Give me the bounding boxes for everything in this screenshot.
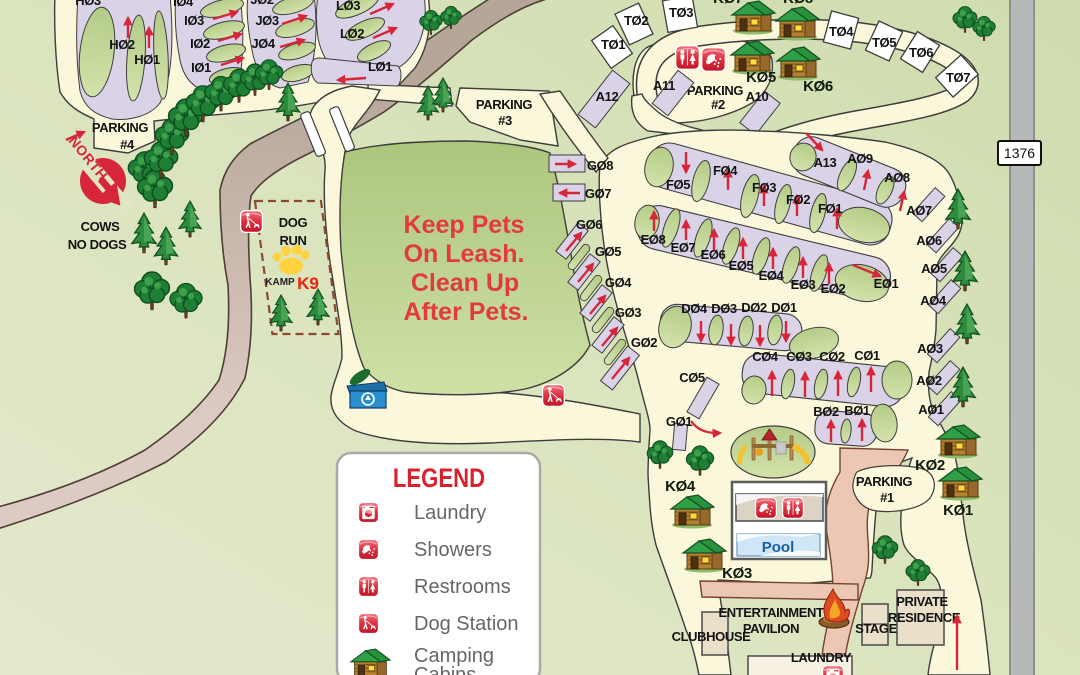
svg-text:AØ6: AØ6 (916, 233, 942, 248)
svg-text:KAMP: KAMP (265, 277, 295, 288)
svg-text:RESIDENCE: RESIDENCE (888, 610, 961, 625)
svg-text:After Pets.: After Pets. (403, 298, 528, 326)
svg-text:AØ4: AØ4 (920, 293, 947, 308)
svg-text:IØ3: IØ3 (184, 13, 204, 28)
svg-text:CØ1: CØ1 (854, 348, 880, 363)
svg-text:TØ2: TØ2 (624, 13, 648, 28)
svg-text:EØ2: EØ2 (821, 281, 846, 296)
svg-text:NO DOGS: NO DOGS (68, 237, 127, 252)
svg-text:PARKING: PARKING (856, 474, 912, 489)
svg-text:LØ2: LØ2 (340, 26, 364, 41)
svg-text:HØ2: HØ2 (109, 37, 135, 52)
svg-text:HØ1: HØ1 (134, 52, 160, 67)
svg-text:ENTERTAINMENT: ENTERTAINMENT (718, 605, 824, 620)
svg-text:EØ8: EØ8 (641, 232, 666, 247)
svg-text:HØ3: HØ3 (75, 0, 101, 8)
svg-text:PRIVATE: PRIVATE (896, 594, 948, 609)
svg-text:PARKING: PARKING (687, 83, 743, 98)
svg-text:DØ2: DØ2 (741, 300, 767, 315)
svg-text:CØ3: CØ3 (786, 349, 812, 364)
svg-text:Clean Up: Clean Up (411, 269, 519, 297)
svg-text:KØ8: KØ8 (783, 0, 813, 7)
svg-text:GØ2: GØ2 (631, 335, 657, 350)
svg-text:EØ3: EØ3 (791, 277, 816, 292)
svg-text:EØ4: EØ4 (759, 268, 785, 283)
svg-text:TØ1: TØ1 (601, 37, 625, 52)
svg-text:AØ5: AØ5 (921, 261, 947, 276)
svg-text:PAVILION: PAVILION (743, 621, 799, 636)
svg-text:Showers: Showers (414, 539, 492, 561)
svg-text:FØ3: FØ3 (752, 180, 776, 195)
svg-text:Restrooms: Restrooms (414, 576, 511, 598)
svg-text:AØ9: AØ9 (847, 151, 873, 166)
svg-text:KØ5: KØ5 (746, 69, 776, 86)
svg-text:PARKING: PARKING (476, 97, 532, 112)
svg-text:TØ7: TØ7 (946, 70, 970, 85)
svg-text:KØ1: KØ1 (943, 502, 973, 519)
svg-text:KØ4: KØ4 (665, 478, 696, 495)
svg-text:KØ3: KØ3 (722, 565, 752, 582)
svg-text:GØ7: GØ7 (585, 186, 611, 201)
svg-text:Pool: Pool (762, 539, 795, 556)
svg-text:EØ7: EØ7 (671, 240, 696, 255)
svg-text:GØ3: GØ3 (615, 305, 641, 320)
svg-text:FØ4: FØ4 (713, 163, 738, 178)
svg-text:KØ7: KØ7 (713, 0, 743, 7)
svg-text:EØ6: EØ6 (701, 247, 726, 262)
svg-text:CLUBHOUSE: CLUBHOUSE (672, 629, 751, 644)
svg-text:GØ6: GØ6 (576, 217, 602, 232)
svg-text:CØ4: CØ4 (752, 349, 779, 364)
svg-text:DOG: DOG (279, 215, 308, 230)
svg-text:BØ1: BØ1 (844, 403, 870, 418)
svg-text:DØ4: DØ4 (681, 301, 708, 316)
svg-text:LØ3: LØ3 (336, 0, 360, 13)
svg-text:IØ4: IØ4 (173, 0, 194, 9)
svg-text:DØ3: DØ3 (711, 301, 737, 316)
svg-text:Dog Station: Dog Station (414, 613, 519, 635)
svg-text:GØ4: GØ4 (605, 275, 632, 290)
svg-text:#3: #3 (498, 113, 512, 128)
svg-text:A12: A12 (596, 89, 619, 104)
svg-text:TØ4: TØ4 (829, 24, 854, 39)
svg-text:#2: #2 (711, 97, 725, 112)
svg-text:PARKING: PARKING (92, 120, 148, 135)
svg-text:Cabins: Cabins (414, 664, 476, 675)
svg-text:LAUNDRY: LAUNDRY (791, 650, 852, 665)
svg-text:AØ3: AØ3 (917, 341, 943, 356)
svg-text:Laundry: Laundry (414, 502, 486, 524)
svg-text:EØ5: EØ5 (729, 258, 754, 273)
svg-text:BØ2: BØ2 (813, 404, 839, 419)
svg-text:CØ5: CØ5 (679, 370, 705, 385)
svg-text:A11: A11 (653, 78, 675, 93)
svg-text:AØ2: AØ2 (916, 373, 942, 388)
svg-text:CØ2: CØ2 (819, 349, 845, 364)
svg-text:GØ8: GØ8 (587, 158, 613, 173)
svg-text:JØ2: JØ2 (250, 0, 274, 7)
svg-text:KØ6: KØ6 (803, 78, 833, 95)
svg-text:EØ1: EØ1 (874, 276, 899, 291)
svg-text:IØ2: IØ2 (190, 36, 210, 51)
svg-text:On Leash.: On Leash. (404, 240, 525, 268)
svg-text:JØ4: JØ4 (251, 36, 276, 51)
svg-text:TØ5: TØ5 (872, 35, 896, 50)
svg-text:COWS: COWS (81, 219, 121, 234)
svg-text:AØ1: AØ1 (918, 402, 944, 417)
svg-text:FØ5: FØ5 (666, 177, 690, 192)
svg-text:AØ7: AØ7 (906, 203, 932, 218)
svg-text:TØ6: TØ6 (909, 45, 933, 60)
svg-text:IØ1: IØ1 (191, 60, 211, 75)
svg-text:K9: K9 (297, 274, 319, 293)
svg-text:DØ1: DØ1 (771, 300, 797, 315)
svg-text:RUN: RUN (280, 233, 307, 248)
svg-text:GØ5: GØ5 (595, 244, 621, 259)
svg-text:FØ2: FØ2 (786, 192, 810, 207)
svg-text:LEGEND: LEGEND (393, 464, 485, 494)
svg-text:A10: A10 (746, 89, 769, 104)
svg-text:JØ3: JØ3 (255, 13, 279, 28)
svg-text:A13: A13 (814, 155, 837, 170)
svg-text:1376: 1376 (1004, 145, 1035, 161)
svg-text:Keep Pets: Keep Pets (404, 211, 525, 239)
svg-text:#1: #1 (880, 490, 894, 505)
svg-text:#4: #4 (120, 137, 135, 152)
svg-text:LØ1: LØ1 (368, 59, 392, 74)
svg-text:AØ8: AØ8 (884, 170, 910, 185)
svg-text:TØ3: TØ3 (669, 5, 693, 20)
svg-text:FØ1: FØ1 (818, 201, 842, 216)
svg-text:GØ1: GØ1 (666, 414, 692, 429)
svg-text:KØ2: KØ2 (915, 457, 945, 474)
